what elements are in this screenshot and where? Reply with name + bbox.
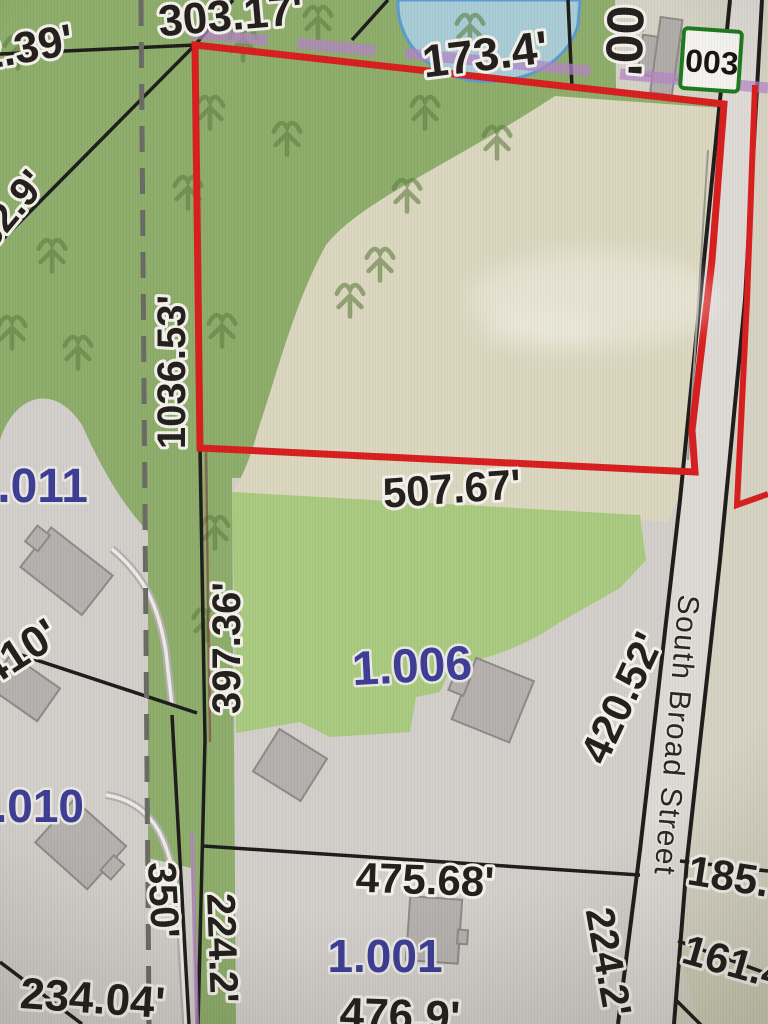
dim-350: 350' [139,861,187,939]
badge-label: 003 [684,42,740,82]
dim-475-68: 475.68' [355,854,495,906]
parcel-badge-003[interactable]: 003 [680,28,742,92]
dim-00: 00' [594,5,654,77]
dim-476-9: 476.9' [339,989,461,1024]
dim-234-04: 234.04' [19,969,167,1024]
dim-224-2-west: 224.2' [198,892,246,1003]
parcel-id-1006: 1.006 [351,637,474,696]
dim-1036-53: 1036.53' [150,295,194,449]
parcel-id-1001: 1.001 [327,930,442,982]
parcel-id-1011: 1.011 [0,460,88,513]
dim-507-67: 507.67' [381,460,522,517]
parcel-id-1010: 1.010 [0,780,84,832]
parcel-map-photo: 003 303.17' 2.39' 173.4' 00' 62.9' 1036.… [0,0,768,1024]
dim-397-36: 397.36' [205,582,249,714]
